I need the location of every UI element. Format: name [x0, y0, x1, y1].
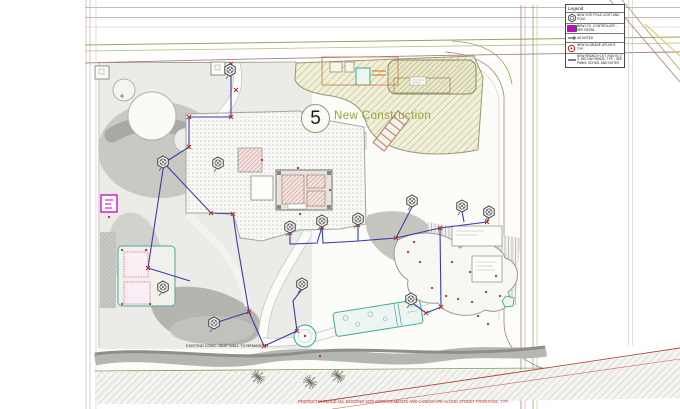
legend: Legend NEW SITE POLE LIGHT AND POLE NEW …: [565, 4, 625, 68]
game-court: [118, 246, 175, 306]
splash-pad: [294, 325, 316, 347]
legend-row: NEW LTG. CONTROLLER - SEE DETAIL: [566, 23, 624, 33]
utility-pad: [95, 66, 109, 79]
pole-light-icon: [566, 13, 577, 23]
palm-tree-icon: [331, 369, 345, 383]
legend-label: NEW IN-GRADE UPLIGHT, TYP.: [577, 43, 624, 52]
paving-inset: [238, 148, 262, 172]
legend-label: AS NOTED: [577, 36, 624, 42]
legend-row: NEW IN-GRADE UPLIGHT, TYP.: [566, 42, 624, 52]
legend-label: NEW LTG. CONTROLLER - SEE DETAIL: [577, 24, 624, 33]
legend-row: NEW BRANCH CKT. RUN IN 1" C. BELOW GRADE…: [566, 53, 624, 67]
branch-circuit-icon: [566, 58, 577, 62]
conduit-stub-icon: [566, 35, 577, 41]
legend-title: Legend: [566, 5, 624, 12]
new-construction-label: New Construction: [334, 110, 431, 122]
shade-structure: [452, 226, 502, 246]
site-plan-page: 5 New Construction EXISTING CONC. SEAT W…: [0, 0, 680, 409]
in-grade-light-icon: [566, 44, 577, 53]
palm-tree-icon: [303, 375, 317, 389]
new-equipment-pad: [356, 68, 370, 85]
utility-pad: [211, 62, 225, 75]
legend-row: NEW SITE POLE LIGHT AND POLE: [566, 12, 624, 23]
area-number-bubble: 5: [301, 104, 330, 133]
central-building: [276, 170, 332, 210]
palm-tree-icon: [251, 370, 265, 384]
tree-canopy: [128, 92, 176, 140]
lighting-controller-icon: [566, 25, 577, 32]
legend-label: NEW BRANCH CKT. RUN IN 1" C. BELOW GRADE…: [577, 54, 624, 67]
legend-row: AS NOTED: [566, 33, 624, 42]
legend-label: NEW SITE POLE LIGHT AND POLE: [577, 13, 624, 22]
area-number: 5: [310, 109, 321, 128]
restroom-building: [472, 256, 502, 282]
street-frontage-note: PROTECT IN PLACE ALL EXISTING SITE IMPRO…: [298, 399, 544, 404]
wall-annotation: EXISTING CONC. SEAT WALL TO REMAIN - PRO…: [186, 343, 268, 348]
